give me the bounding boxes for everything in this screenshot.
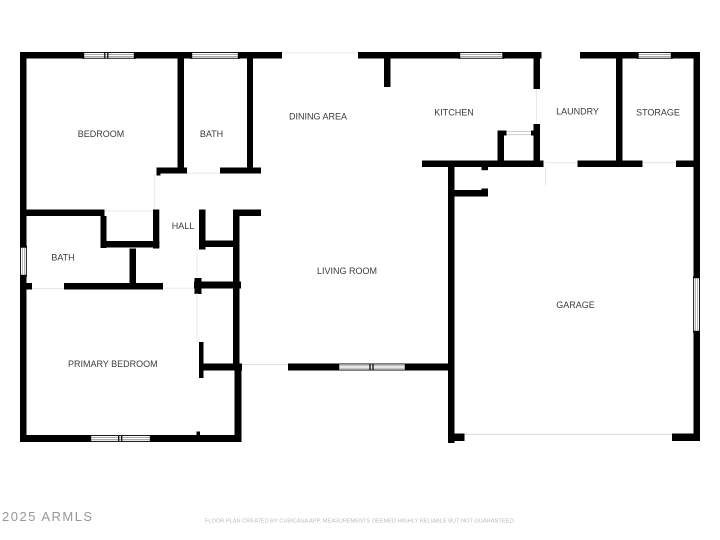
svg-text:BEDROOM: BEDROOM — [78, 129, 125, 139]
svg-text:LIVING ROOM: LIVING ROOM — [317, 266, 377, 276]
svg-text:BATH: BATH — [200, 129, 223, 139]
svg-text:FLOOR PLAN CREATED BY CUBICASA: FLOOR PLAN CREATED BY CUBICASA APP. MEAS… — [205, 519, 516, 525]
svg-text:DINING AREA: DINING AREA — [289, 112, 347, 122]
svg-text:2025 ARMLS: 2025 ARMLS — [2, 509, 94, 524]
svg-text:BATH: BATH — [51, 253, 74, 263]
svg-text:GARAGE: GARAGE — [556, 300, 595, 310]
svg-text:PRIMARY BEDROOM: PRIMARY BEDROOM — [68, 359, 158, 369]
svg-text:KITCHEN: KITCHEN — [434, 108, 474, 118]
svg-text:STORAGE: STORAGE — [636, 108, 680, 118]
svg-text:HALL: HALL — [172, 221, 195, 231]
svg-text:LAUNDRY: LAUNDRY — [556, 107, 599, 117]
